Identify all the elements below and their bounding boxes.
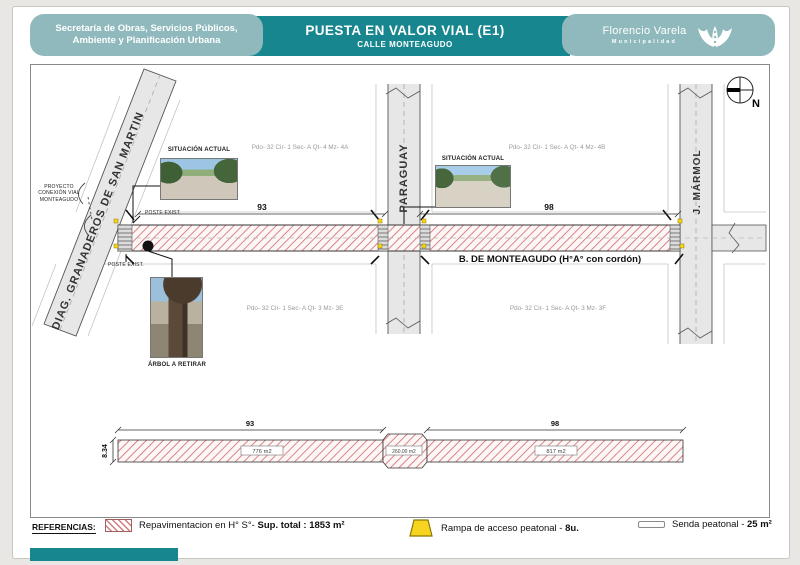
photo3-caption: ÁRBOL A RETIRAR [138, 362, 216, 368]
section-dim-98: 98 [551, 419, 559, 428]
road-monteagudo [118, 225, 766, 251]
legend-repav-text: Repavimentacion en H° S°- Sup. total : 1… [139, 520, 345, 531]
department-line2: Ambiente y Planificación Urbana [73, 35, 221, 47]
dim-93-plan: 93 [257, 202, 267, 212]
north-compass-icon: N [727, 77, 760, 110]
legend-item-repavimentacion: Repavimentacion en H° S°- Sup. total : 1… [105, 519, 345, 532]
area-right-label: 817 m2 [546, 449, 565, 455]
department-line1: Secretaría de Obras, Servicios Públicos, [55, 23, 237, 35]
photo-situacion-actual-2 [435, 165, 511, 208]
area-mid-label: 260.00 m2 [392, 449, 416, 455]
municipality-subtitle: Municipalidad [612, 39, 677, 45]
parcel-label-3f: Pdo- 32 Cir- 1 Sec- A Qt- 3 Mz- 3F [510, 305, 606, 312]
municipality-box: Florencio Varela Municipalidad [562, 14, 775, 56]
street-label-diagonal: DIAG. GRANADEROS DE SAN MARTIN [50, 110, 147, 332]
page-subtitle: CALLE MONTEAGUDO [357, 40, 453, 49]
legend-item-senda: Senda peatonal - 25 m² [638, 519, 772, 530]
dim-98-plan: 98 [544, 202, 554, 212]
legend-rampa-text: Rampa de acceso peatonal - 8u. [441, 523, 579, 534]
section-dim-93: 93 [246, 419, 254, 428]
section-dim-height: 8.34 [102, 444, 109, 458]
poste-exist-label-2: POSTE EXIST. [104, 262, 148, 268]
plan-sheet-page: PUESTA EN VALOR VIAL (E1) CALLE MONTEAGU… [0, 0, 800, 565]
photo2-caption: SITUACIÓN ACTUAL [430, 156, 516, 162]
rampa-swatch-icon [408, 519, 434, 537]
page-title: PUESTA EN VALOR VIAL (E1) [305, 23, 504, 38]
municipality-logo-icon [695, 20, 735, 50]
municipality-names: Florencio Varela Municipalidad [602, 25, 686, 45]
plan-drawing: DIAG. GRANADEROS DE SAN MARTIN [30, 64, 770, 518]
proyecto-label: PROYECTO CONEXIÓN VIAL MONTEAGUDO [36, 184, 82, 203]
tree-to-remove-dot [143, 241, 154, 252]
photo1-caption: SITUACIÓN ACTUAL [160, 147, 238, 153]
legend-title: REFERENCIAS: [32, 522, 96, 534]
poste-exist-label-1: POSTE EXIST. [141, 210, 185, 216]
footer-accent-bar [30, 548, 178, 561]
legend-item-rampa: Rampa de acceso peatonal - 8u. [408, 519, 579, 537]
photo-arbol-a-retirar [150, 277, 203, 358]
department-box: Secretaría de Obras, Servicios Públicos,… [30, 14, 263, 56]
parcel-label-3e: Pdo- 32 Cir- 1 Sec- A Qt- 3 Mz- 3E [247, 305, 344, 312]
senda-swatch [638, 521, 665, 528]
parcel-label-4a: Pdo- 32 Cir- 1 Sec- A Qt- 4 Mz- 4A [252, 144, 349, 151]
street-label-monteagudo: B. DE MONTEAGUDO (H°A° con cordón) [459, 254, 641, 265]
header-title-band: PUESTA EN VALOR VIAL (E1) CALLE MONTEAGU… [240, 16, 570, 56]
legend-senda-text: Senda peatonal - 25 m² [672, 519, 772, 530]
compass-north-label: N [752, 98, 760, 110]
area-left-label: 776 m2 [252, 449, 271, 455]
street-label-paraguay: PARAGUAY [398, 143, 410, 212]
municipality-name: Florencio Varela [602, 25, 686, 37]
repavimentacion-swatch [105, 519, 132, 532]
photo-situacion-actual-1 [160, 158, 238, 200]
parcel-label-4b: Pdo- 32 Cir- 1 Sec- A Qt- 4 Mz- 4B [509, 144, 606, 151]
street-label-marmol: J. MÁRMOL [690, 149, 703, 214]
